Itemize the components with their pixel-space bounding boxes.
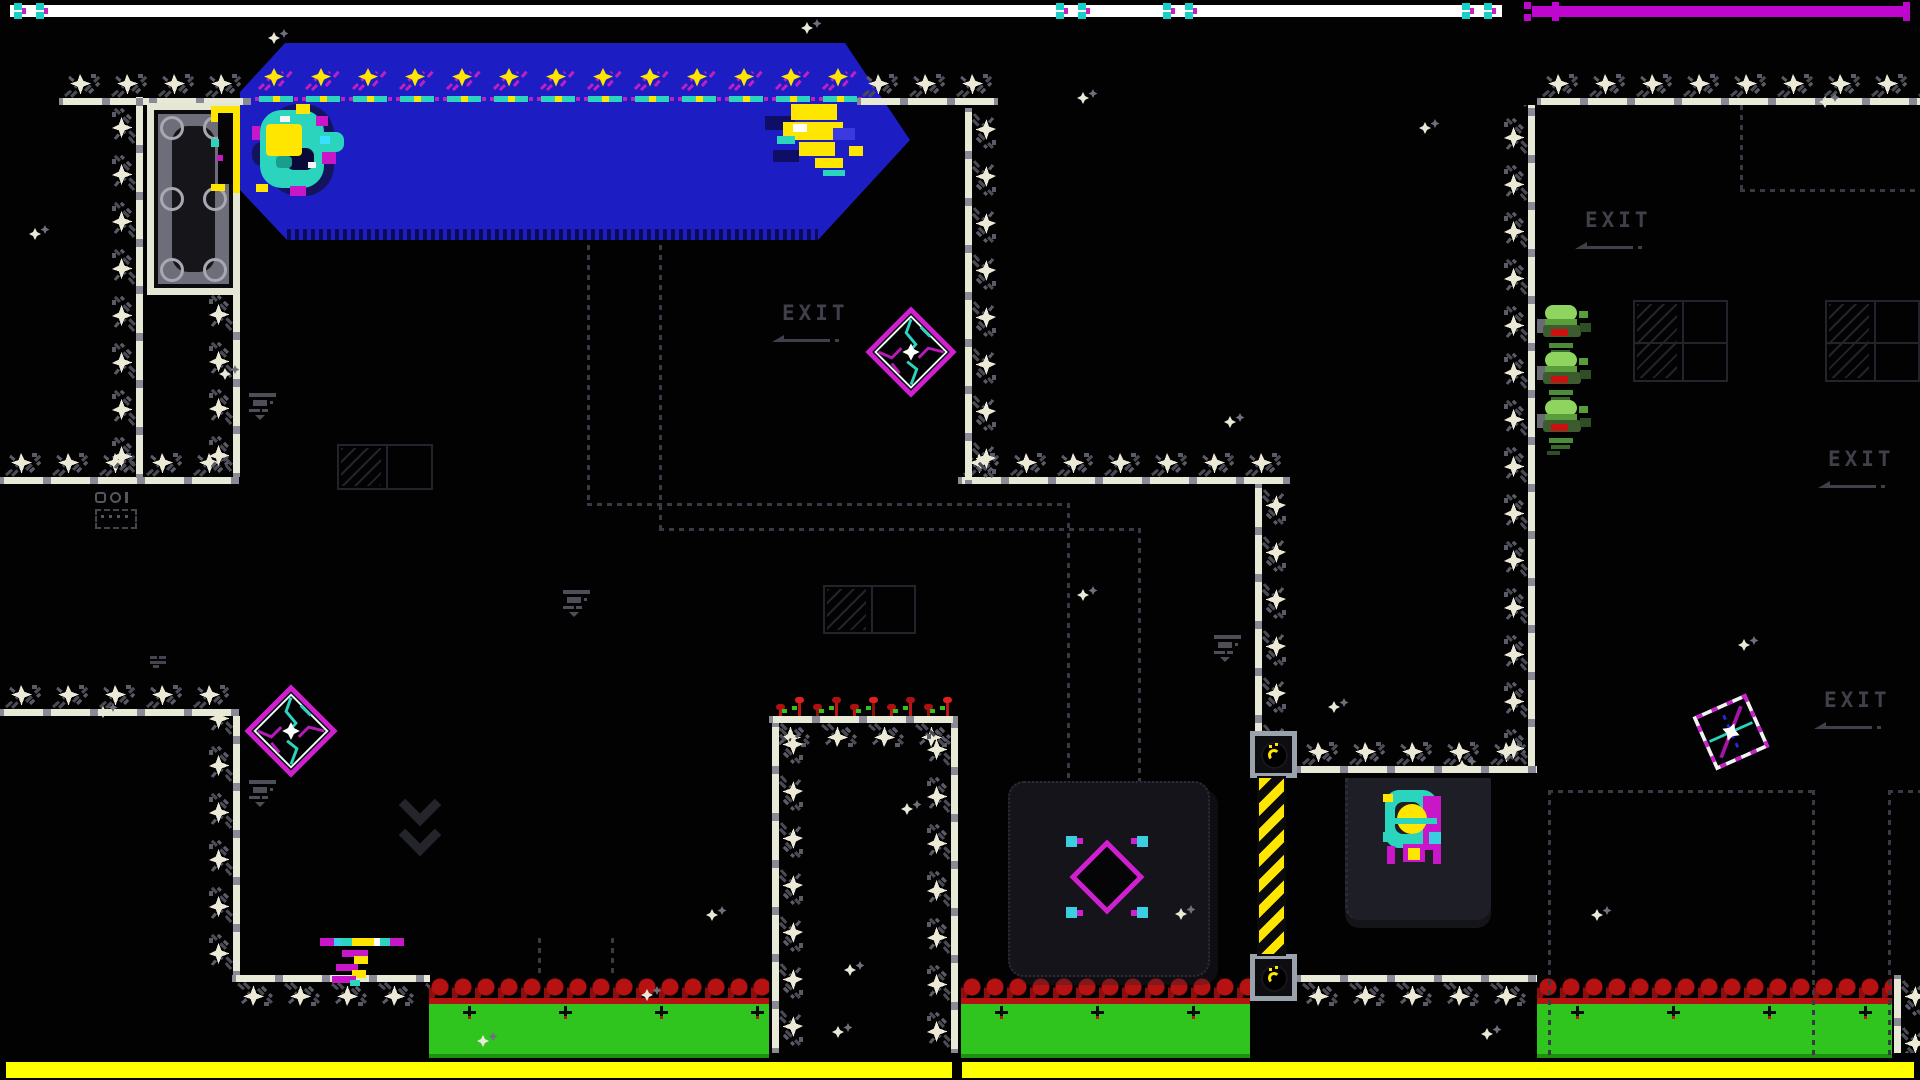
wall-tile-decor: [779, 723, 806, 1053]
machine-sprite-px: [1408, 848, 1420, 860]
wall-tile-decor: [59, 71, 251, 98]
plant-stem: [872, 701, 875, 716]
hud-glitch-px: [36, 3, 44, 10]
hud-glitch-px: [1078, 3, 1086, 10]
caution-strip[interactable]: [1259, 778, 1284, 954]
door-glitch-bracket: [233, 106, 240, 193]
wall-tile-decor: [109, 97, 136, 478]
pool-pad-sprite: [723, 62, 770, 104]
hud-glitch-px: [1056, 12, 1064, 19]
wall-surface-bar: [1255, 484, 1262, 732]
gold-glitch-sprite[interactable]: [765, 100, 885, 220]
wall-tiles: [1894, 975, 1920, 1053]
trace-line: [1067, 503, 1070, 781]
bumper-ball: [1261, 742, 1288, 769]
hud-progress-cross: [1552, 14, 1559, 21]
plant-tuft: [905, 697, 915, 716]
wall-surface-bar: [965, 108, 972, 484]
drone-turret-px: [1551, 376, 1568, 383]
drone-turret-px: [1551, 445, 1570, 449]
dice-px: [95, 492, 106, 503]
hud-glitch-px: [1078, 12, 1086, 19]
dice-px: [101, 515, 104, 518]
player-sprite-px: [316, 116, 328, 126]
plant-cap: [943, 697, 952, 703]
gold-glitch-sprite-px: [799, 142, 835, 156]
exit-underline-dot: [1638, 246, 1642, 249]
exit-arrow-icon: [772, 335, 784, 342]
wall-run-inner: [958, 450, 1290, 484]
sparkle-icon: [1590, 905, 1614, 923]
window-frame: [1633, 300, 1728, 382]
drone-turret-px: [1579, 358, 1588, 365]
trace-line: [1740, 105, 1743, 189]
wall-tiles: [109, 97, 143, 478]
hud-glitch-px: [1185, 3, 1193, 10]
machine-sprite[interactable]: [1381, 788, 1501, 908]
plant-leaf: [819, 709, 824, 713]
machine-sprite-px: [1429, 832, 1441, 844]
grass-cross-px: [1667, 1011, 1680, 1014]
exit-underline: [772, 333, 842, 343]
plant-cap: [795, 697, 804, 703]
plant-leaf: [940, 706, 945, 710]
hud-glitch-px: [1462, 3, 1470, 10]
plant-leaf: [792, 706, 797, 710]
plant-tuft: [942, 697, 952, 716]
bumper-pad[interactable]: [1250, 954, 1297, 1001]
grass-cross-px: [1763, 1011, 1776, 1014]
wall-tiles: [958, 450, 1290, 484]
hud-glitch-px: [36, 12, 44, 19]
mine-diamond[interactable]: [863, 304, 959, 400]
sparkle-icon: [1076, 88, 1100, 106]
exit-underline-dot: [835, 339, 839, 342]
grass-cap: [429, 978, 769, 1000]
wall-tiles: [59, 71, 251, 105]
pool-pad-sprite: [770, 62, 817, 104]
hud-glitch-px: [1185, 12, 1193, 19]
gold-glitch-sprite-px: [791, 104, 837, 120]
wall-run-inner: [924, 723, 958, 1053]
exit-underline-dot: [1877, 726, 1881, 729]
hud-progress-cross: [1552, 2, 1559, 9]
trace-line: [1888, 790, 1891, 1056]
grass-cross-dot: [655, 1006, 668, 1019]
wall-tiles: [965, 108, 999, 484]
shelf-icon: [247, 393, 279, 421]
plant-leaf: [856, 709, 861, 713]
dice-box: [95, 509, 137, 529]
trace-line: [587, 245, 590, 503]
machine-sprite-px: [1387, 846, 1395, 864]
wall-run-inner: [1537, 71, 1920, 105]
frame-divider: [871, 587, 873, 632]
grass-cross-dot: [1187, 1006, 1200, 1019]
grass-cross-px: [995, 1011, 1008, 1014]
wall-tile-decor: [1262, 484, 1289, 732]
hud-glitch-px: [1484, 3, 1492, 10]
sparkle-icon: [1818, 92, 1842, 110]
grass-cross-px: [468, 1016, 471, 1019]
exit-switch-diamond[interactable]: [1052, 822, 1162, 932]
player-sprite-px: [320, 136, 330, 144]
exit-underline-line: [1587, 246, 1633, 249]
wall-run-inner: [206, 716, 240, 975]
dice-px: [117, 515, 120, 518]
wall-surface-bar: [958, 477, 1290, 484]
gold-glitch-sprite-px: [777, 136, 795, 144]
gold-glitch-sprite-px: [815, 158, 843, 168]
wall-run-inner: [59, 71, 251, 105]
wall-tile-decor: [206, 716, 233, 975]
door-glitch-bracket: [211, 184, 225, 191]
hud-progress-cross: [1903, 2, 1910, 9]
wall-run-inner: [1501, 105, 1535, 770]
trace-line: [611, 938, 614, 978]
player-sprite-px: [266, 124, 302, 156]
grass-cross-px: [660, 1016, 663, 1019]
sparkle-icon: [843, 960, 867, 978]
player-sprite-px: [308, 162, 316, 168]
hud-glitch-px: [1064, 8, 1068, 14]
player-sprite-px: [252, 126, 260, 140]
plant-cap: [906, 697, 915, 703]
door-glitch-bracket: [211, 139, 219, 147]
dice-px: [109, 515, 112, 518]
grass-cap: [961, 978, 1250, 1000]
plant-stem: [909, 701, 912, 716]
drone-turret-px: [1547, 451, 1560, 455]
hud-glitch-px: [1193, 8, 1197, 14]
wall-tiles: [1501, 105, 1535, 770]
wall-run-inner: [965, 108, 999, 484]
plant-leaf: [893, 709, 898, 713]
hud-glitch-px: [26, 6, 34, 14]
plant-stem: [946, 701, 949, 716]
umbrella-glitch-sprite-px: [334, 938, 342, 946]
hud-top-bar: [10, 5, 1502, 17]
player-sprite-px: [290, 186, 306, 196]
gold-glitch-sprite-px: [823, 170, 845, 176]
player-sprite-px: [280, 116, 290, 122]
wall-surface-bar: [1528, 105, 1535, 770]
hud-glitch-px: [14, 3, 22, 10]
wall-surface-bar: [233, 716, 240, 975]
grass-cross-dot: [463, 1006, 476, 1019]
hud-glitch-px: [1492, 8, 1496, 14]
door-knob: [160, 116, 184, 140]
wall-surface-bar: [233, 294, 240, 477]
sparkle-icon: [267, 28, 291, 46]
wall-surface-bar: [136, 97, 143, 478]
dice-px: [110, 492, 121, 503]
wall-surface-bar: [1297, 975, 1537, 982]
grass-cross-px: [1768, 1016, 1771, 1019]
plant-tuft: [849, 704, 859, 716]
plant-leaf: [829, 706, 834, 710]
hud-progress-cross: [1524, 14, 1531, 21]
grass-cross-px: [751, 1011, 764, 1014]
mini-icon: [150, 661, 166, 664]
hud-glitch-px: [1484, 12, 1492, 19]
wall-tiles: [772, 723, 806, 1053]
plant-tuft: [868, 697, 878, 716]
grass-cross-dot: [1571, 1006, 1584, 1019]
hud-glitch-px: [1163, 3, 1171, 10]
wall-tile-decor: [1537, 71, 1920, 98]
umbrella-glitch-sprite-px: [380, 938, 390, 946]
hud-bar-glitch: [1056, 3, 1090, 19]
grass-body: [1537, 998, 1892, 1058]
wall-surface-bar: [1537, 98, 1920, 105]
plant-leaf: [930, 709, 935, 713]
shelf-icon: [561, 590, 593, 618]
umbrella-glitch-sprite-px: [342, 938, 352, 946]
drone-turret-px: [1579, 406, 1588, 413]
pool-pad-sprite: [629, 62, 676, 104]
drone-turret[interactable]: [1537, 398, 1657, 518]
sparkle-icon: [831, 1022, 855, 1040]
hud-glitch-px: [14, 12, 22, 19]
trace-line: [1812, 790, 1815, 1056]
sparkle-icon: [640, 985, 664, 1003]
exit-label: EXIT: [1828, 449, 1895, 470]
wall-surface-bar: [772, 723, 779, 1053]
trace-line: [1548, 790, 1812, 793]
trace-line: [659, 528, 1138, 531]
hud-bottom-bar: [962, 1062, 1914, 1078]
frame-divider: [1874, 302, 1876, 380]
wall-tiles: [206, 294, 240, 477]
gold-glitch-sprite-px: [849, 146, 863, 156]
plant-tuft: [794, 697, 804, 716]
umbrella-glitch-sprite-px: [350, 980, 360, 986]
exit-underline-dot: [1881, 485, 1885, 488]
wall-surface-bar: [769, 716, 958, 723]
exit-label: EXIT: [1824, 690, 1891, 711]
wall-tile-decor: [1297, 982, 1537, 1009]
plant-stem: [835, 701, 838, 716]
wall-tiles: [1255, 484, 1289, 732]
machine-sprite-px: [1383, 794, 1393, 802]
shelf-icon: [247, 780, 279, 808]
sparkle-icon: [1327, 697, 1351, 715]
grass-cross-dot: [1667, 1006, 1680, 1019]
pool-dither: [287, 229, 818, 240]
grass-cap: [1537, 978, 1892, 1000]
machine-sprite-px: [1433, 846, 1441, 864]
hud-glitch-px: [1462, 12, 1470, 19]
chevron-logo-icon: [399, 814, 441, 856]
wall-tile-decor: [1501, 105, 1528, 770]
sparkle-icon: [705, 905, 729, 923]
wall-tile-decor: [206, 294, 233, 477]
hud-glitch-px: [1163, 12, 1171, 19]
wall-run-inner: [1894, 975, 1920, 1053]
wall-tiles: [206, 716, 240, 975]
hud-glitch-px: [22, 8, 26, 14]
grass-cross-px: [1576, 1016, 1579, 1019]
drone-turret-px: [1551, 424, 1568, 431]
sparkle-icon: [900, 799, 924, 817]
trace-line: [1740, 189, 1920, 192]
hud-glitch-px: [1086, 8, 1090, 14]
drone-turret-px: [1549, 438, 1573, 443]
wall-tile-decor: [1901, 975, 1920, 1053]
grass-cross-px: [756, 1016, 759, 1019]
wall-tile-decor: [857, 71, 998, 98]
window-frame: [1825, 300, 1920, 382]
grass-cross-px: [1187, 1011, 1200, 1014]
hud-glitch-px: [1068, 6, 1076, 14]
sparkle-icon: [476, 1031, 500, 1049]
trace-line: [1138, 528, 1141, 781]
wall-run-inner: [206, 294, 240, 477]
plant-tuft: [886, 704, 896, 716]
machine-sprite-px: [1383, 832, 1395, 842]
exit-label: EXIT: [782, 303, 849, 324]
grass-cross-px: [463, 1011, 476, 1014]
grass-cross-px: [1192, 1016, 1195, 1019]
sparkle-icon: [1480, 1024, 1504, 1042]
grass-cross-dot: [1859, 1006, 1872, 1019]
bumper-highlight: [1268, 972, 1280, 984]
window-frame: [823, 585, 916, 634]
grass-cross-dot: [751, 1006, 764, 1019]
bumper-pip: [1269, 745, 1272, 748]
drone-turret-px: [1580, 323, 1591, 332]
door-glitch-bracket: [211, 106, 218, 122]
window-frame: [337, 444, 433, 490]
plant-tuft: [923, 704, 933, 716]
wall-tile-decor: [958, 450, 1290, 477]
umbrella-glitch-sprite-px: [352, 938, 374, 946]
frame-hatch: [341, 448, 381, 486]
exit-label: EXIT: [1585, 210, 1652, 231]
player-sprite-px: [256, 184, 268, 192]
hud-bar-glitch: [1462, 3, 1496, 19]
dice-px: [125, 492, 128, 503]
grass-body: [429, 998, 769, 1058]
pool-pad-sprite: [441, 62, 488, 104]
exit-arrow-icon: [1814, 722, 1826, 729]
exit-underline-line: [1830, 485, 1876, 488]
hud-bottom-bar: [6, 1062, 952, 1078]
hud-progress-cross: [1903, 14, 1910, 21]
grass-cross-px: [1864, 1016, 1867, 1019]
mine-diamond[interactable]: [242, 682, 340, 780]
mini-icon: [159, 656, 166, 659]
game-viewport[interactable]: EXIT EXIT EXIT EXIT: [0, 0, 1920, 1080]
plant-stem: [798, 701, 801, 716]
drone-turret-px: [1579, 311, 1588, 318]
grass-cross-dot: [1091, 1006, 1104, 1019]
sparkle-icon: [1455, 756, 1479, 774]
grass-cross-px: [1672, 1016, 1675, 1019]
wall-tiles: [1297, 975, 1537, 1009]
wall-surface-bar: [1894, 975, 1901, 1053]
umbrella-glitch-sprite: [320, 936, 440, 1056]
hud-glitch-px: [1470, 8, 1474, 14]
wall-surface-bar: [951, 723, 958, 1053]
pool-pad-sprite: [676, 62, 723, 104]
trace-line: [1548, 790, 1551, 1056]
grass-cross-px: [559, 1011, 572, 1014]
sparkle-icon: [800, 18, 824, 36]
sparkle-icon: [1418, 118, 1442, 136]
hud-glitch-px: [44, 8, 48, 14]
hud-glitch-px: [1056, 3, 1064, 10]
grass-cross-dot: [995, 1006, 1008, 1019]
player-sprite[interactable]: [252, 98, 372, 218]
sparkle-icon: [28, 224, 52, 242]
plant-tuft: [775, 704, 785, 716]
drone-turret-px: [1549, 390, 1573, 395]
grass-cross-px: [1000, 1016, 1003, 1019]
plant-leaf: [782, 709, 787, 713]
shelf-icon: [1212, 635, 1244, 663]
gold-glitch-sprite-px: [773, 150, 799, 162]
wall-run-inner: [109, 97, 143, 478]
door-glitch-bracket: [218, 113, 233, 184]
frame-divider: [386, 446, 388, 488]
plant-leaf: [903, 706, 908, 710]
umbrella-glitch-sprite-px: [354, 956, 368, 964]
pool-pad-sprite: [582, 62, 629, 104]
hud-bar-glitch: [14, 3, 48, 19]
bumper-ball: [1261, 965, 1288, 992]
mine-diamond[interactable]: [1672, 673, 1791, 792]
frame-hatch: [827, 589, 866, 630]
hud-progress-cross: [1524, 2, 1531, 9]
umbrella-glitch-sprite-px: [320, 938, 334, 946]
exit-underline-line: [1826, 726, 1872, 729]
sparkle-icon: [1076, 585, 1100, 603]
frame-hatch: [1829, 304, 1869, 378]
grass-cross-dot: [559, 1006, 572, 1019]
pool-pad-sprite: [535, 62, 582, 104]
plant-tuft: [812, 704, 822, 716]
drone-turret-px: [1551, 329, 1568, 336]
frame-divider: [1682, 302, 1684, 380]
sparkle-icon: [96, 702, 120, 720]
umbrella-glitch-sprite-px: [390, 938, 404, 946]
grass-cross-px: [1859, 1011, 1872, 1014]
grass-cross-px: [655, 1011, 668, 1014]
door-chamber[interactable]: [147, 103, 240, 295]
door-glitch-bracket: [217, 155, 223, 161]
grass-cross-dot: [1763, 1006, 1776, 1019]
bumper-pip: [1275, 966, 1278, 969]
player-sprite-px: [296, 104, 310, 114]
plant-tuft: [831, 697, 841, 716]
trace-line: [659, 245, 662, 528]
sparkle-icon: [218, 364, 242, 382]
hud-glitch-px: [1474, 6, 1482, 14]
mini-icon: [150, 656, 157, 659]
player-sprite-px: [322, 152, 336, 164]
sparkle-icon: [1223, 412, 1247, 430]
bumper-pad[interactable]: [1250, 731, 1297, 778]
grass-cross-px: [564, 1016, 567, 1019]
door-knob: [160, 187, 184, 211]
mini-icon: [153, 665, 159, 668]
trace-line: [1888, 790, 1920, 793]
wall-surface-bar: [0, 477, 239, 484]
plant-cap: [832, 697, 841, 703]
bumper-pip: [1275, 743, 1278, 746]
